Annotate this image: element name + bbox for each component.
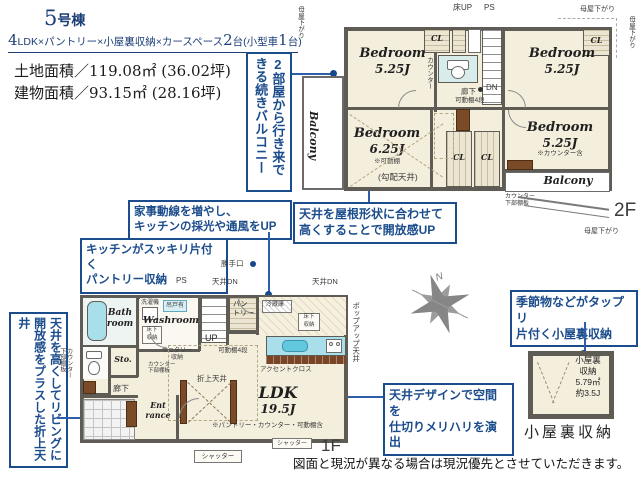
dn-dot <box>478 87 483 92</box>
building-title: 5号棟 <box>44 6 85 30</box>
wall <box>136 295 139 351</box>
back-door-label: 勝手口 <box>221 260 244 269</box>
closet-label: CL <box>424 33 450 43</box>
accent-label: アクセントクロス <box>260 366 312 373</box>
ldk-note: ※パントリー・カウンター・可動棚含 <box>212 422 323 429</box>
spec-line: 4LDK×パントリー×小屋裏収納×カースペース2台(小型車1台) <box>8 31 298 53</box>
sloped-ceiling-note: (勾配天井) <box>378 173 418 183</box>
callout-ceiling-design: 天井デザインで空間を 仕切りメリハリを演出 <box>383 383 514 456</box>
bedroom2-size: 5.25J <box>518 62 606 77</box>
callout-connected-balcony: 2部屋から行き来できる続きバルコニー <box>246 52 292 192</box>
callout-attic-storage: 季節物などがタップリ 片付く小屋裏収納 <box>510 290 638 347</box>
accent-wall-strip <box>266 356 346 364</box>
disclaimer: 図面と現況が異なる場合は現況優先とさせていただきます。 <box>293 457 629 471</box>
toilet-bowl-2f <box>451 66 465 79</box>
counter-2f-label: カウンター <box>425 57 432 101</box>
closet-label: CL <box>583 35 610 45</box>
back-door-dot <box>250 261 256 267</box>
land-area: 土地面積／119.08㎡ (36.02坪) <box>14 60 231 81</box>
underfloor-storage-kitchen: 床下 収納 <box>298 313 320 331</box>
hallway-2f-label: 廊下 <box>461 88 476 97</box>
wall <box>346 107 610 110</box>
hallway-1f-label: 廊下 <box>113 384 129 393</box>
spec-ldk-count: 4 <box>8 31 18 49</box>
ceiling-dn-label: 天井DN <box>212 278 238 287</box>
fridge-label: 冷蔵庫 <box>266 302 284 309</box>
callout-pantry-storage: キッチンがスッキリ片付く パントリー収納 <box>80 238 228 294</box>
callout-sloped-ceiling: 天井を屋根形状に合わせて 高くすることで開放感UP <box>293 202 457 244</box>
building-number: 5 <box>44 6 57 30</box>
shutter-label: シャッター <box>194 450 242 463</box>
entrance-step <box>126 401 137 427</box>
stove <box>326 339 342 353</box>
wall <box>226 331 259 334</box>
wall <box>136 347 139 377</box>
stairwell-void <box>434 113 454 159</box>
moya-label: 母屋下がり <box>627 16 634 72</box>
floor-up-label: 床UP <box>453 3 472 12</box>
balcony-right-label: Balcony <box>533 174 603 188</box>
closet-label: CL <box>474 152 500 162</box>
counter-2f <box>507 160 533 170</box>
moya-label: 母屋下がり <box>584 228 619 236</box>
stove-burner <box>329 342 333 346</box>
spec-text-2: 台(小型車 <box>233 36 279 48</box>
building-suffix: 号棟 <box>57 12 85 28</box>
compass: N <box>408 272 472 336</box>
floor-2f-label: 2F <box>614 200 636 222</box>
counter-shelf-left-label: カウンター 下部棚板 <box>58 348 72 400</box>
floor-1f-label: 1F <box>321 436 341 456</box>
floor-up-cell <box>452 29 466 53</box>
sanitary-storage-label: サニタリー 収納 <box>158 348 196 362</box>
washer-label: 洗濯機 <box>141 300 159 307</box>
floorplan-flyer: 5号棟 4LDK×パントリー×小屋裏収納×カースペース2台(小型車1台) 土地面… <box>0 0 640 480</box>
leader-balcony <box>292 73 334 75</box>
spec-text-1: LDK×パントリー×小屋裏収納×カースペース <box>18 36 224 48</box>
spec-car-count: 2 <box>223 31 233 49</box>
pillar <box>230 380 237 424</box>
ldk-name: LDK <box>250 383 306 403</box>
entrance-label: Ent rance <box>142 400 174 420</box>
balcony-left-label: Balcony <box>306 96 320 176</box>
raised-ceiling-label: 折上天井 <box>195 375 229 384</box>
bedroom1-size: 5.25J <box>350 62 435 77</box>
popup-ceiling-label: ポップアップ天井 <box>351 302 360 374</box>
wall <box>110 375 138 378</box>
building-area: 建物面積／93.15㎡ (28.16坪) <box>14 82 221 103</box>
attic-caption: 小屋裏収納 <box>524 424 614 441</box>
stove-burner <box>336 342 340 346</box>
bathtub <box>87 301 107 341</box>
ps-shaft <box>468 29 481 53</box>
counter-shelf-mid-label: カウンター 下部棚板 <box>148 362 182 375</box>
bedroom1-name: Bedroom <box>350 46 435 62</box>
bedroom4-size: 5.25J <box>518 136 602 151</box>
dn-label: DN <box>486 83 498 92</box>
compass-n: N <box>434 271 445 284</box>
spec-small-car-count: 1 <box>278 31 288 49</box>
compass-rose-icon: N <box>400 264 481 345</box>
toilet-bowl-1f <box>88 361 100 375</box>
up-label: UP <box>205 333 218 343</box>
leader-attic <box>584 322 586 353</box>
hanging-cabinet: 吊戸有 <box>163 300 187 312</box>
ceiling-dn-label: 天井DN <box>312 278 338 287</box>
moya-label: 母屋下がり <box>580 6 615 14</box>
bedroom3-size: 6.25J <box>346 142 428 157</box>
guide-line <box>616 18 617 58</box>
ldk-size: 19.5J <box>250 402 306 417</box>
storage-label: Sto. <box>110 354 136 364</box>
shelf-2f-label: 可動棚4段 <box>455 97 485 104</box>
leader-housework <box>268 232 270 293</box>
bedroom4-name: Bedroom <box>518 120 602 136</box>
counter-1f-left <box>83 381 96 394</box>
ps-2f-label: PS <box>484 3 495 12</box>
wall <box>82 395 138 398</box>
bedroom4-note: ※カウンター含 <box>524 150 596 157</box>
toilet-tank-1f <box>86 351 102 359</box>
bedroom2-name: Bedroom <box>518 46 606 62</box>
ps-1f-label: PS <box>176 276 187 285</box>
wall <box>502 27 505 112</box>
wall <box>430 109 433 189</box>
moya-label: 母屋下がり <box>296 6 303 62</box>
guide-line <box>558 18 614 19</box>
shutter-label: シャッター <box>272 438 312 449</box>
stairs-2f <box>482 29 502 105</box>
bathroom-label: Bath room <box>105 308 135 331</box>
stair-rail-2f <box>456 109 470 131</box>
kitchen-sink <box>282 340 308 352</box>
attic-room-text: 小屋裏 収納 5.79㎡ 約3.5J <box>566 355 610 399</box>
